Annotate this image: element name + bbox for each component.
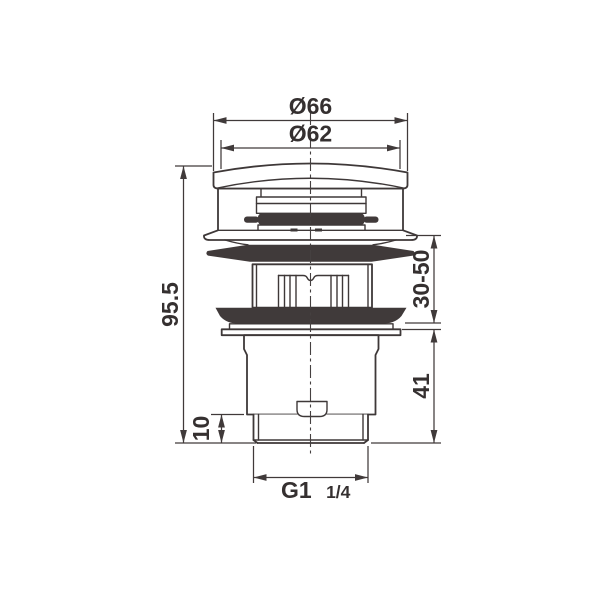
dimension-thread-length: 10	[188, 415, 244, 444]
stem-collar	[257, 197, 367, 213]
arrow-right	[395, 117, 408, 124]
dimension-lower-body-height: 41	[371, 330, 441, 444]
upper-seal-tab-right	[364, 217, 379, 223]
retainer-plate-tick-right	[315, 229, 322, 232]
arrow-right	[387, 145, 400, 152]
upper-seal-ring	[258, 213, 365, 225]
valve-technical-drawing: Ø66 Ø62 95.5 30-50 41	[0, 0, 600, 600]
arrow-left	[254, 474, 267, 481]
arrow-down	[180, 430, 187, 443]
arrow-down	[218, 430, 225, 443]
thread-size-main: G1	[281, 477, 312, 503]
total-height-label: 95.5	[157, 282, 183, 327]
arrow-up	[431, 236, 438, 249]
arrow-up	[218, 415, 225, 428]
cap-outer-diameter-label: Ø66	[289, 93, 332, 119]
arrow-left	[221, 145, 234, 152]
arrow-down	[431, 310, 438, 323]
cage-body	[253, 264, 373, 307]
dimension-clamping-range: 30-50	[405, 236, 441, 324]
retainer-plate-tick-left	[291, 229, 298, 232]
thread-size-fraction: 1/4	[326, 482, 351, 502]
clamping-range-label: 30-50	[408, 250, 434, 309]
technical-drawing-page: Ø66 Ø62 95.5 30-50 41	[0, 0, 600, 600]
thread-length-label: 10	[188, 416, 214, 442]
thread-size-label: G1 1/4	[281, 477, 351, 503]
arrow-right	[355, 474, 368, 481]
lower-body-height-label: 41	[408, 373, 434, 399]
arrow-left	[214, 117, 227, 124]
retainer-plate	[258, 225, 365, 230]
valve-outline	[204, 112, 417, 457]
dimension-thread-size: G1 1/4	[254, 446, 369, 503]
overflow-tab	[297, 402, 327, 417]
cap-top-diameter-label: Ø62	[289, 121, 332, 147]
arrow-up	[180, 166, 187, 179]
arrow-up	[431, 330, 438, 343]
upper-seal-tab-left	[244, 217, 259, 223]
arrow-down	[431, 430, 438, 443]
